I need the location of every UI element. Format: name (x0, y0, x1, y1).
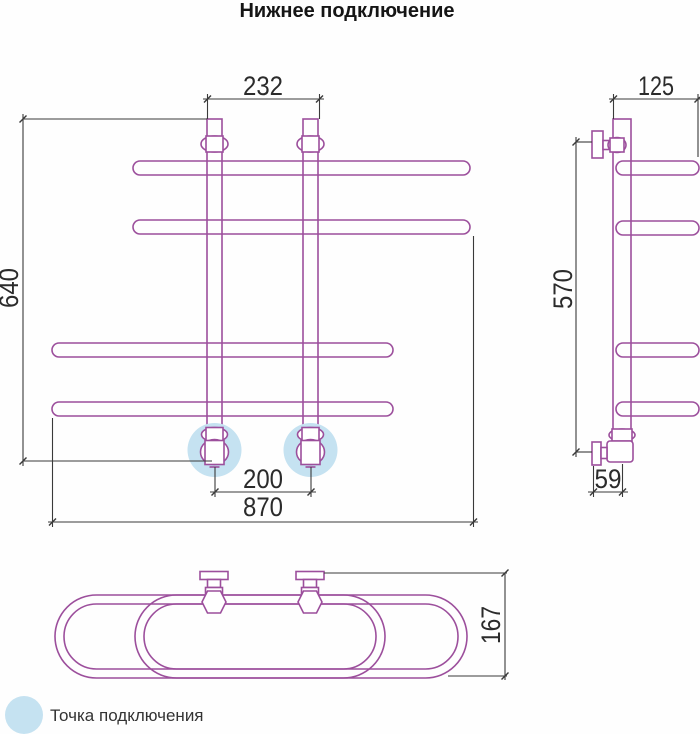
connection-valve (297, 428, 325, 468)
legend: Точка подключения (5, 696, 204, 734)
dim-front-height-label: 640 (0, 268, 24, 308)
dimension-front-top-spacing: 232 (203, 71, 324, 119)
dim-side-wall-offset-label: 59 (595, 464, 622, 494)
towel-bar-side (616, 343, 699, 357)
wall-bracket-bottom-valve (592, 429, 635, 465)
wall-bracket-plan (296, 572, 324, 614)
dimension-front-height: 640 (0, 114, 212, 466)
dimension-side-height: 570 (548, 137, 592, 457)
towel-radiator-drawing: Нижнее подключение (0, 0, 700, 734)
dim-top-depth-label: 167 (476, 606, 506, 644)
dim-front-connection-spacing-label: 200 (243, 464, 283, 494)
coupling-nut (201, 136, 228, 152)
side-view: 125 570 59 (548, 71, 700, 497)
riser-pipe-left (207, 119, 222, 431)
towel-bar-side (616, 402, 699, 416)
wall-bracket-top (592, 131, 626, 158)
dim-front-top-spacing-label: 232 (243, 71, 283, 101)
towel-bar (133, 220, 470, 234)
dim-side-height-label: 570 (548, 269, 578, 309)
connection-point-marker (5, 696, 43, 734)
dim-front-total-width-label: 870 (243, 492, 283, 522)
coupling-nut (297, 136, 324, 152)
towel-bar-side (616, 221, 699, 235)
technical-drawing-page: Нижнее подключение (0, 0, 700, 734)
front-view: 232 640 200 870 (0, 71, 478, 527)
wall-bracket-plan (200, 572, 228, 614)
dimension-side-wall-offset: 59 (588, 464, 628, 497)
dimension-top-depth: 167 (324, 570, 509, 681)
towel-bar (133, 161, 470, 175)
dim-side-depth-label: 125 (638, 71, 674, 101)
towel-bar-side (616, 161, 699, 175)
top-view: 167 (55, 570, 509, 681)
tube-loop-inner-right (144, 604, 458, 669)
page-title: Нижнее подключение (239, 0, 454, 22)
legend-label: Точка подключения (50, 706, 204, 725)
riser-pipe-right (303, 119, 318, 431)
